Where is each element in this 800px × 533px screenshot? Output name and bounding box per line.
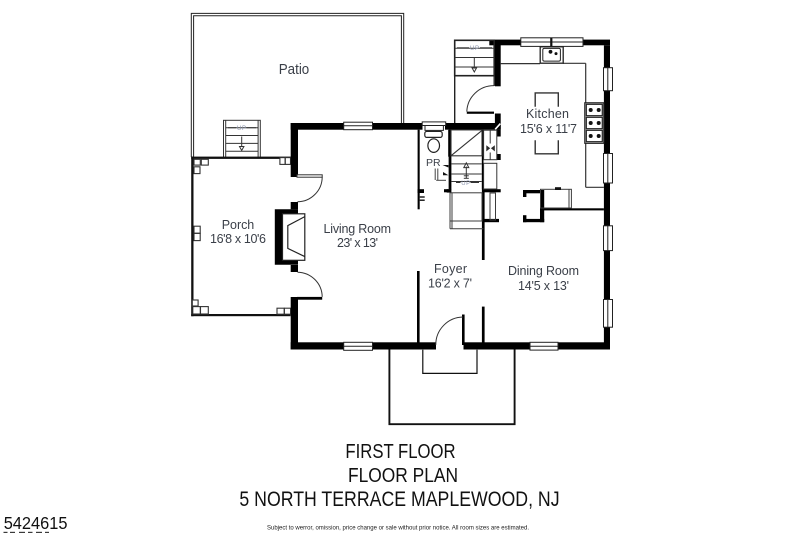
svg-text:UP: UP — [470, 46, 479, 52]
svg-text:Porch: Porch — [222, 218, 255, 232]
svg-text:FLOOR PLAN: FLOOR PLAN — [348, 465, 458, 487]
svg-text:5 NORTH TERRACE MAPLEWOOD, NJ: 5 NORTH TERRACE MAPLEWOOD, NJ — [239, 487, 559, 511]
svg-text:5424615: 5424615 — [4, 513, 68, 533]
svg-text:Dining Room: Dining Room — [508, 264, 579, 278]
svg-text:Living Room: Living Room — [324, 222, 392, 236]
svg-text:Subject to werror, omission, p: Subject to werror, omission, price chang… — [267, 524, 529, 531]
svg-text:UP: UP — [461, 181, 470, 187]
svg-text:16'2 x 7': 16'2 x 7' — [428, 277, 472, 291]
svg-text:14'5 x 13': 14'5 x 13' — [518, 279, 569, 293]
svg-text:Patio: Patio — [279, 62, 310, 78]
svg-text:16'8 x 10'6: 16'8 x 10'6 — [210, 232, 266, 246]
svg-text:Foyer: Foyer — [434, 262, 467, 276]
svg-text:23' x 13': 23' x 13' — [337, 236, 378, 250]
svg-text:FIRST FLOOR: FIRST FLOOR — [345, 441, 455, 463]
svg-text:PR: PR — [426, 157, 441, 169]
svg-text:UP: UP — [237, 126, 246, 132]
svg-text:15'6 x 11'7: 15'6 x 11'7 — [520, 122, 577, 136]
svg-text:Kitchen: Kitchen — [526, 107, 569, 121]
